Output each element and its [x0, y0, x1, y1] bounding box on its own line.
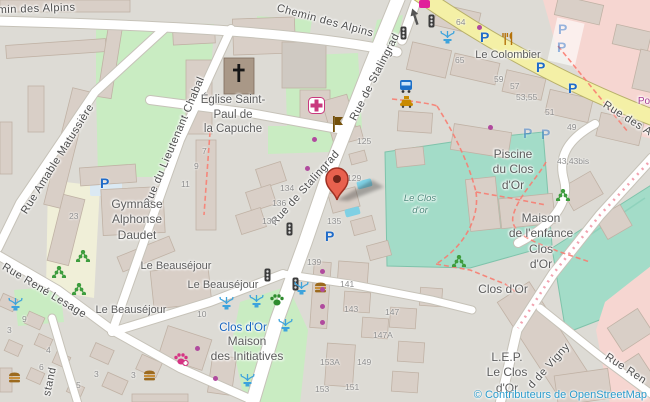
attribution[interactable]: © Contributeurs de OpenStreetMap	[474, 389, 647, 401]
map-canvas[interactable]: PPPPPPPPP Chemin des AlpinsChemin des Al…	[0, 0, 650, 402]
map-marker[interactable]	[310, 160, 410, 206]
